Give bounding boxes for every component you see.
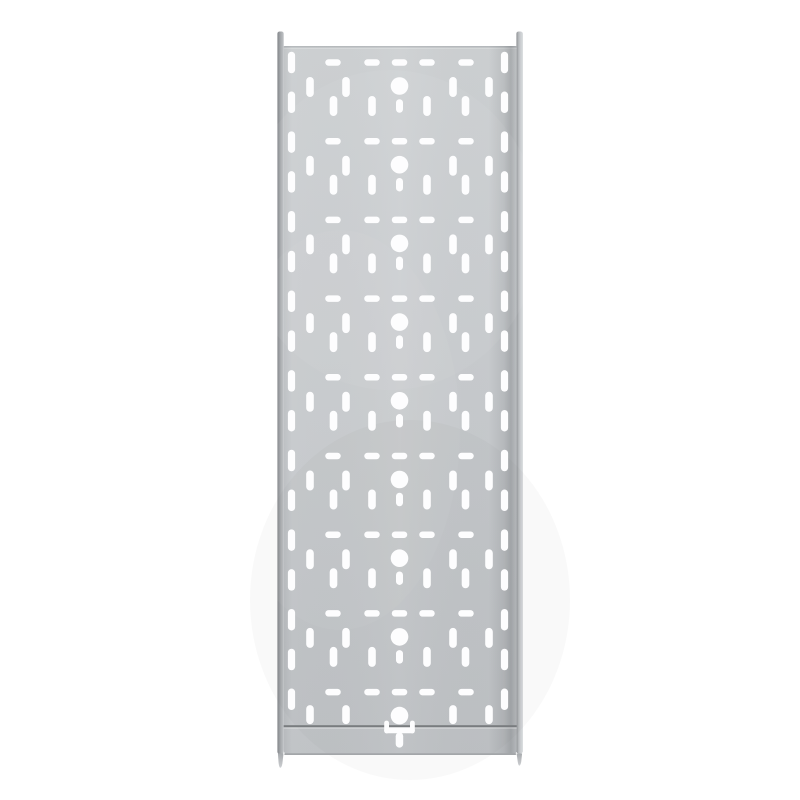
perforation-hole xyxy=(501,569,508,591)
perforation-hole xyxy=(288,251,295,273)
perforation-hole xyxy=(449,234,457,254)
perforation-hole xyxy=(306,156,314,176)
perforation-hole xyxy=(391,628,409,646)
perforation-hole xyxy=(288,490,295,512)
perforation-hole xyxy=(449,156,457,176)
perforation-hole xyxy=(330,96,338,116)
perforation-hole xyxy=(501,490,508,512)
perforation-hole xyxy=(392,217,408,224)
perforation-hole xyxy=(396,335,403,349)
perforation-hole xyxy=(368,96,376,116)
perforation-hole xyxy=(458,531,474,538)
perforation-hole xyxy=(325,374,341,381)
perforation-hole xyxy=(419,138,435,145)
perforation-hole xyxy=(325,59,341,66)
perforation-hole xyxy=(458,217,474,224)
perforation-hole xyxy=(485,471,493,491)
perforation-hole xyxy=(364,374,380,381)
perforation-hole xyxy=(501,291,508,313)
perforation-hole xyxy=(501,171,508,193)
perforation-hole xyxy=(501,529,508,551)
perforation-hole xyxy=(391,313,409,331)
perforation-hole xyxy=(396,414,403,428)
perforation-hole xyxy=(462,253,470,273)
perforation-hole xyxy=(462,490,470,510)
perforation-hole xyxy=(306,705,314,724)
perforation-hole xyxy=(342,156,350,176)
perforation-hole xyxy=(330,175,338,195)
perforation-hole xyxy=(449,705,457,724)
perforation-hole xyxy=(306,628,314,648)
perforation-hole xyxy=(423,647,431,667)
perforation-hole xyxy=(342,705,350,724)
perforation-hole xyxy=(396,178,403,192)
perforation-hole xyxy=(330,253,338,273)
perforation-hole xyxy=(368,647,376,667)
perforation-hole xyxy=(368,253,376,273)
perforation-hole xyxy=(449,471,457,491)
perforation-hole xyxy=(288,171,295,193)
perforation-hole xyxy=(342,549,350,569)
perforation-hole xyxy=(288,649,295,671)
perforation-hole xyxy=(423,253,431,273)
perforation-hole xyxy=(330,332,338,352)
perforation-hole xyxy=(330,647,338,667)
perforation-hole xyxy=(501,689,508,711)
perforation-hole xyxy=(325,217,341,224)
perforation-hole xyxy=(462,647,470,667)
perforation-hole xyxy=(368,490,376,510)
perforation-hole xyxy=(288,410,295,432)
perforation-hole xyxy=(419,453,435,460)
perforation-hole xyxy=(458,374,474,381)
perforation-hole xyxy=(449,313,457,333)
seam-line xyxy=(284,725,517,727)
product-image-canvas: Product image: straight perforated cable… xyxy=(0,0,800,800)
perforation-hole xyxy=(325,610,341,617)
perforation-hole xyxy=(330,490,338,510)
perforation-hole xyxy=(288,370,295,392)
perforation-hole xyxy=(485,392,493,412)
perforation-hole xyxy=(449,392,457,412)
perforation-hole xyxy=(501,92,508,114)
perforation-hole xyxy=(288,450,295,472)
perforation-hole xyxy=(392,689,408,696)
perforation-hole xyxy=(396,493,403,507)
perforation-hole xyxy=(288,330,295,352)
perforation-hole xyxy=(391,392,409,410)
perforation-hole xyxy=(485,628,493,648)
perforation-hole xyxy=(342,392,350,412)
perforation-hole xyxy=(364,217,380,224)
perforation-hole xyxy=(325,689,341,696)
perforation-hole xyxy=(462,175,470,195)
perforation-hole xyxy=(306,234,314,254)
perforation-hole xyxy=(342,313,350,333)
perforation-hole xyxy=(391,156,409,174)
perforation-hole xyxy=(419,59,435,66)
perforation-hole xyxy=(288,92,295,114)
perforation-hole xyxy=(325,295,341,302)
perforation-hole xyxy=(364,59,380,66)
perforation-hole xyxy=(392,610,408,617)
perforation-hole xyxy=(462,332,470,352)
perforation-hole xyxy=(391,549,409,567)
perforation-hole xyxy=(288,529,295,551)
perforation-hole xyxy=(342,628,350,648)
perforation-hole xyxy=(462,96,470,116)
perforation-hole xyxy=(449,77,457,97)
perforation-hole xyxy=(419,217,435,224)
perforation-hole xyxy=(364,453,380,460)
perforation-hole xyxy=(501,211,508,233)
perforation-hole xyxy=(330,411,338,431)
perforation-hole xyxy=(342,234,350,254)
perforation-hole xyxy=(419,689,435,696)
perforation-hole xyxy=(306,471,314,491)
perforation-hole xyxy=(396,99,403,113)
perforation-hole xyxy=(364,295,380,302)
perforation-hole xyxy=(391,77,409,95)
perforation-hole xyxy=(419,374,435,381)
perforation-hole xyxy=(449,628,457,648)
perforation-hole xyxy=(288,131,295,153)
perforation-hole xyxy=(306,549,314,569)
perforation-hole xyxy=(419,531,435,538)
tray-bottom-edge xyxy=(284,753,516,755)
perforation-hole xyxy=(306,77,314,97)
perforation-hole xyxy=(368,332,376,352)
perforation-hole xyxy=(419,295,435,302)
perforation-hole xyxy=(449,549,457,569)
perforation-hole xyxy=(423,332,431,352)
perforation-hole xyxy=(325,138,341,145)
perforation-hole xyxy=(288,609,295,631)
perforation-hole xyxy=(485,313,493,333)
perforation-hole xyxy=(392,531,408,538)
perforation-hole xyxy=(288,569,295,591)
cable-tray-product-image xyxy=(0,0,800,800)
perforation-hole xyxy=(368,568,376,588)
perforation-hole xyxy=(462,568,470,588)
perforation-hole xyxy=(458,59,474,66)
perforation-hole xyxy=(485,77,493,97)
perforation-hole xyxy=(288,52,295,74)
perforation-hole xyxy=(458,295,474,302)
perforation-hole xyxy=(423,96,431,116)
perforation-hole xyxy=(501,609,508,631)
perforation-hole xyxy=(485,549,493,569)
perforation-hole xyxy=(501,251,508,273)
perforation-hole xyxy=(423,568,431,588)
perforation-hole xyxy=(501,450,508,472)
perforation-hole xyxy=(458,138,474,145)
perforation-hole xyxy=(288,211,295,233)
perforation-hole xyxy=(392,138,408,145)
perforation-hole xyxy=(458,610,474,617)
perforation-hole xyxy=(392,295,408,302)
perforation-hole xyxy=(501,370,508,392)
perforation-hole xyxy=(501,131,508,153)
perforation-hole xyxy=(396,732,404,747)
perforation-hole xyxy=(423,411,431,431)
perforation-hole xyxy=(306,313,314,333)
perforation-hole xyxy=(364,138,380,145)
perforation-hole xyxy=(458,689,474,696)
perforation-hole xyxy=(325,531,341,538)
perforation-hole xyxy=(501,330,508,352)
perforation-hole xyxy=(485,156,493,176)
perforation-hole xyxy=(391,471,409,489)
perforation-hole xyxy=(325,453,341,460)
perforation-hole xyxy=(368,175,376,195)
perforation-hole xyxy=(342,471,350,491)
perforation-hole xyxy=(419,610,435,617)
perforation-hole xyxy=(501,52,508,74)
perforation-hole xyxy=(392,374,408,381)
perforation-hole xyxy=(364,689,380,696)
perforation-hole xyxy=(342,77,350,97)
perforation-hole xyxy=(392,59,408,66)
perforation-hole xyxy=(392,453,408,460)
perforation-hole xyxy=(391,707,409,725)
perforation-hole xyxy=(423,490,431,510)
perforation-hole xyxy=(391,235,409,253)
perforation-hole xyxy=(485,705,493,724)
perforation-hole xyxy=(501,410,508,432)
perforation-hole xyxy=(458,453,474,460)
perforation-hole xyxy=(364,531,380,538)
perforation-hole xyxy=(368,411,376,431)
perforation-hole xyxy=(501,649,508,671)
perforation-hole xyxy=(306,392,314,412)
perforation-hole xyxy=(288,689,295,711)
perforation-hole xyxy=(396,571,403,585)
perforation-hole xyxy=(485,234,493,254)
perforation-hole xyxy=(288,291,295,313)
perforation-hole xyxy=(396,650,403,664)
perforation-hole xyxy=(462,411,470,431)
perforation-hole xyxy=(330,568,338,588)
perforation-hole xyxy=(396,257,403,271)
perforation-hole xyxy=(364,610,380,617)
perforation-hole xyxy=(423,175,431,195)
